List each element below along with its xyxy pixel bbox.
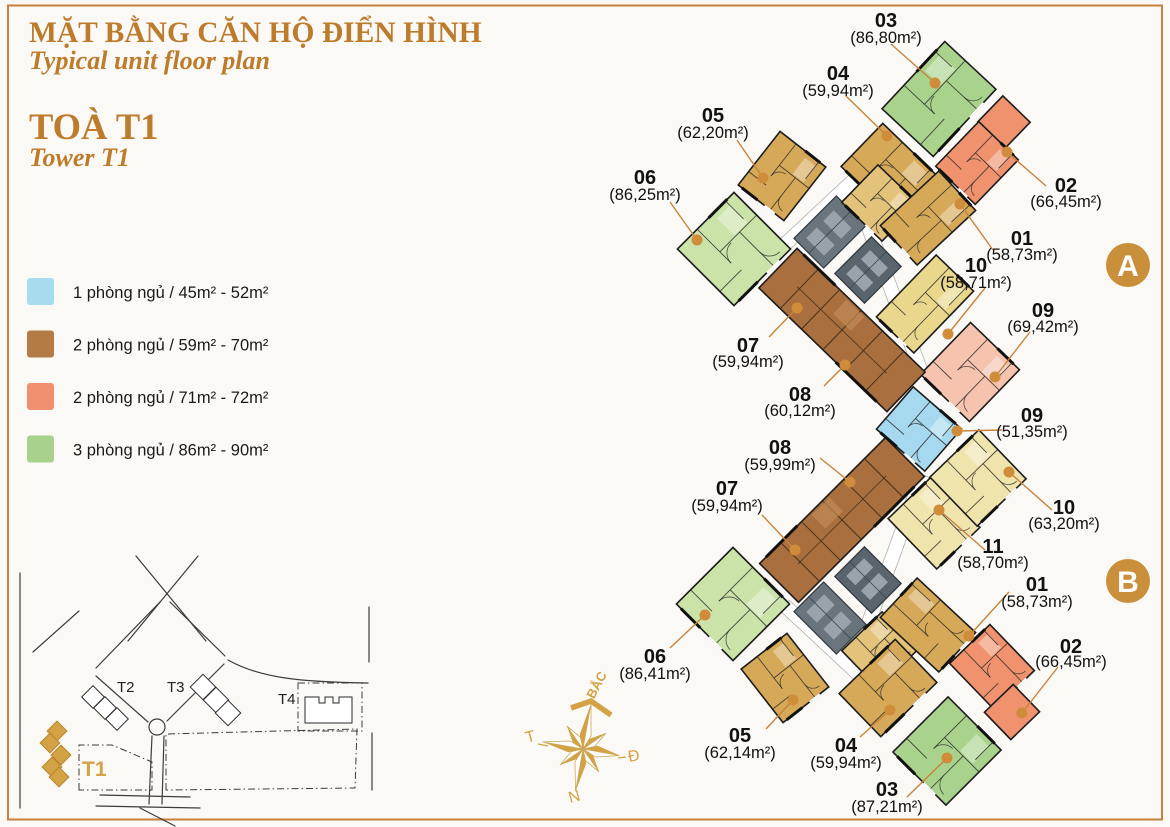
svg-text:T3: T3 [167,679,185,696]
svg-text:(58,73m²): (58,73m²) [1001,593,1073,611]
svg-text:(63,20m²): (63,20m²) [1028,515,1100,533]
svg-text:(86,80m²): (86,80m²) [850,29,922,47]
svg-text:(59,94m²): (59,94m²) [712,353,784,371]
svg-text:(58,73m²): (58,73m²) [986,246,1058,264]
svg-text:(66,45m²): (66,45m²) [1035,653,1107,671]
svg-text:(87,21m²): (87,21m²) [851,798,923,816]
svg-text:(62,20m²): (62,20m²) [677,124,749,142]
svg-text:(62,14m²): (62,14m²) [704,744,776,762]
svg-text:B: B [1117,566,1139,599]
svg-text:2 phòng ngủ / 59m² - 70m²: 2 phòng ngủ / 59m² - 70m² [73,337,269,355]
svg-text:T1: T1 [82,758,107,781]
svg-text:(58,71m²): (58,71m²) [940,274,1012,292]
svg-text:(69,42m²): (69,42m²) [1007,318,1079,336]
svg-text:A: A [1117,250,1139,283]
svg-text:MẶT BẰNG CĂN HỘ ĐIỂN HÌNH: MẶT BẰNG CĂN HỘ ĐIỂN HÌNH [29,15,482,49]
svg-text:(59,94m²): (59,94m²) [691,497,763,515]
svg-text:T4: T4 [278,691,296,708]
svg-text:(58,70m²): (58,70m²) [957,554,1029,572]
svg-text:(86,41m²): (86,41m²) [619,665,691,683]
svg-text:(60,12m²): (60,12m²) [764,402,836,420]
svg-text:1 phòng ngủ / 45m² - 52m²: 1 phòng ngủ / 45m² - 52m² [73,284,269,302]
svg-text:Typical unit floor plan: Typical unit floor plan [29,46,270,75]
svg-text:(51,35m²): (51,35m²) [996,423,1068,441]
svg-text:(59,94m²): (59,94m²) [810,754,882,772]
svg-text:2 phòng ngủ / 71m² - 72m²: 2 phòng ngủ / 71m² - 72m² [73,389,269,407]
svg-text:Tower T1: Tower T1 [29,143,130,172]
svg-text:(86,25m²): (86,25m²) [609,186,681,204]
svg-text:(59,94m²): (59,94m²) [802,82,874,100]
svg-text:(66,45m²): (66,45m²) [1030,193,1102,211]
svg-text:T2: T2 [117,679,135,696]
svg-text:3 phòng ngủ / 86m² - 90m²: 3 phòng ngủ / 86m² - 90m² [73,442,269,460]
svg-text:(59,99m²): (59,99m²) [744,456,816,474]
svg-text:TOÀ T1: TOÀ T1 [29,106,159,147]
